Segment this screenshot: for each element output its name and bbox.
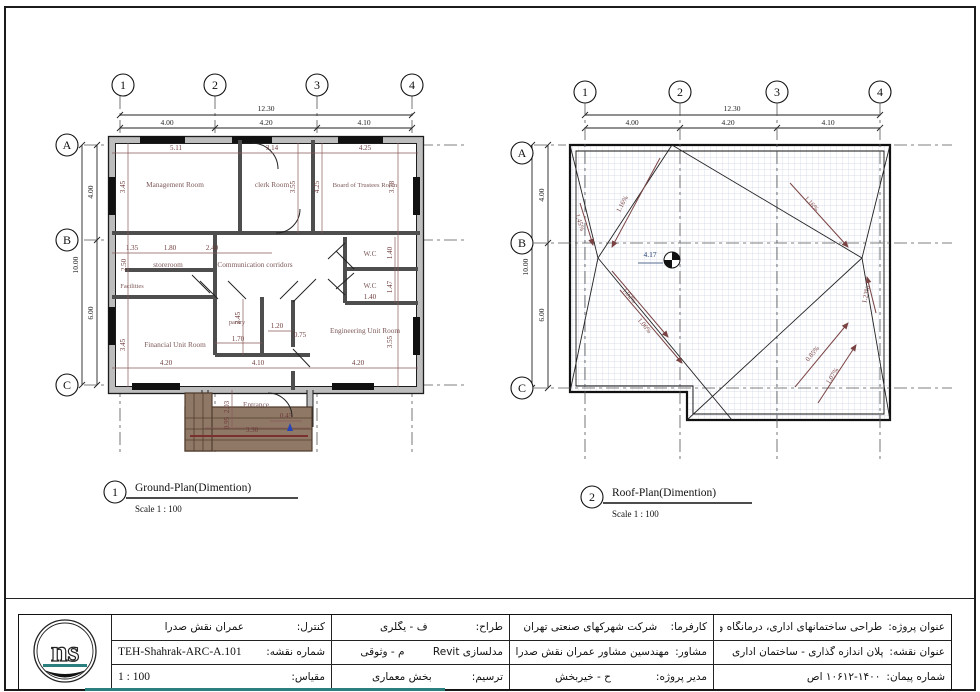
contract-number-value: ۱۰۶۱۲-۱۴۰۰ اص	[807, 671, 881, 683]
svg-text:1.70: 1.70	[232, 335, 245, 343]
svg-text:W.C: W.C	[364, 281, 377, 290]
ground-plan-view[interactable]: 12.30 4.00 4.20 4.10 4.00 6.00 10.00 1 2…	[40, 55, 470, 530]
view-number: 2	[589, 490, 595, 504]
drawing-sheet: 12.30 4.00 4.20 4.10 4.00 6.00 10.00 1 2…	[0, 0, 980, 692]
sheet-title-cell: عنوان نقشه: پلان اندازه گذاری - ساختمان …	[713, 640, 951, 665]
title-block: ns کنترل: عمران نقش صدرا طراح: ف - یگلری…	[18, 614, 952, 690]
sheet-number-value: TEH-Shahrak-ARC-A.101	[118, 646, 260, 658]
svg-text:10.00: 10.00	[521, 258, 530, 275]
svg-text:0.95: 0.95	[223, 416, 231, 429]
svg-text:storeroom: storeroom	[153, 260, 183, 269]
scale-label: مقیاس:	[291, 671, 325, 683]
svg-text:2.50: 2.50	[120, 258, 128, 271]
svg-text:2: 2	[677, 85, 683, 99]
client-value: شرکت شهرکهای صنعتی تهران	[516, 621, 665, 633]
project-title-value: طراحی ساختمانهای اداری، درمانگاه و مسجد	[720, 621, 882, 633]
svg-text:Board of Trustees Room: Board of Trustees Room	[333, 182, 399, 189]
svg-text:4.20: 4.20	[352, 359, 365, 367]
svg-text:C: C	[63, 378, 71, 392]
svg-text:Facilities: Facilities	[120, 283, 144, 290]
svg-text:5.11: 5.11	[170, 144, 182, 152]
svg-text:1.35: 1.35	[126, 244, 139, 252]
contract-number-label: شماره پیمان:	[886, 671, 945, 683]
modeling-cell: مدلسازی Revit م - وثوقی	[331, 640, 509, 665]
svg-text:B: B	[63, 233, 71, 247]
svg-text:W.C: W.C	[364, 249, 377, 258]
roof-plan-canvas: 12.30 4.00 4.20 4.10 4.00 6.00 10.00 1 2…	[500, 55, 960, 530]
designer-cell: طراح: ف - یگلری	[331, 615, 509, 640]
svg-text:12.30: 12.30	[724, 104, 741, 113]
svg-text:1.40: 1.40	[386, 246, 394, 259]
control-value: عمران نقش صدرا	[118, 621, 291, 633]
title-block-margin-line	[6, 598, 974, 599]
svg-text:2.40: 2.40	[206, 244, 219, 252]
svg-text:Communication corridors: Communication corridors	[217, 260, 292, 269]
svg-text:6.00: 6.00	[86, 306, 95, 319]
svg-text:1.80: 1.80	[164, 244, 177, 252]
scale-value: 1 : 100	[118, 671, 285, 683]
svg-text:4.10: 4.10	[252, 359, 265, 367]
designer-value: ف - یگلری	[338, 621, 470, 633]
project-manager-label: مدیر پروژه:	[656, 671, 707, 683]
svg-text:4.25: 4.25	[359, 144, 372, 152]
svg-text:4.00: 4.00	[160, 118, 173, 127]
client-cell: کارفرما: شرکت شهرکهای صنعتی تهران	[509, 615, 713, 640]
roof-plan-title: 2 Roof-Plan(Dimention) Scale 1 : 100	[581, 486, 752, 519]
sheet-number-label: شماره نقشه:	[266, 646, 325, 658]
view-title: Ground-Plan(Dimention)	[135, 482, 251, 494]
view-title: Roof-Plan(Dimention)	[612, 487, 716, 499]
logo-text: ns	[51, 635, 79, 668]
control-cell: کنترل: عمران نقش صدرا	[111, 615, 331, 640]
svg-text:clerk Room: clerk Room	[255, 180, 290, 189]
spot-elevation-value: 4.17	[643, 250, 656, 259]
svg-text:pantry: pantry	[229, 319, 246, 326]
svg-text:3.14: 3.14	[266, 144, 279, 152]
svg-text:3: 3	[774, 85, 780, 99]
svg-text:0.75: 0.75	[294, 331, 307, 339]
ground-plan-title: 1 Ground-Plan(Dimention) Scale 1 : 100	[104, 481, 298, 514]
svg-text:1: 1	[582, 85, 588, 99]
project-title-label: عنوان پروژه:	[888, 621, 945, 633]
svg-text:6.00: 6.00	[537, 308, 546, 321]
svg-text:4.00: 4.00	[86, 185, 95, 198]
dim-total-width: 12.30	[258, 104, 275, 113]
roof-plan-view[interactable]: 12.30 4.00 4.20 4.10 4.00 6.00 10.00 1 2…	[500, 55, 960, 530]
svg-text:4.20: 4.20	[721, 118, 734, 127]
sheet-number-cell: شماره نقشه: TEH-Shahrak-ARC-A.101	[111, 640, 331, 665]
svg-text:Financial Unit Room: Financial Unit Room	[144, 340, 206, 349]
svg-text:4.20: 4.20	[160, 359, 173, 367]
svg-text:4.00: 4.00	[537, 188, 546, 201]
svg-text:A: A	[518, 146, 527, 160]
svg-text:A: A	[63, 138, 72, 152]
svg-text:4.00: 4.00	[625, 118, 638, 127]
svg-text:2: 2	[212, 78, 218, 92]
consultant-value: مهندسین مشاور عمران نقش صدرا	[516, 646, 669, 658]
svg-text:3: 3	[314, 78, 320, 92]
svg-text:Management Room: Management Room	[146, 180, 204, 189]
svg-text:3.45: 3.45	[119, 338, 127, 351]
svg-text:Engineering Unit Room: Engineering Unit Room	[330, 326, 400, 335]
svg-text:0.45: 0.45	[280, 412, 293, 420]
svg-text:10.00: 10.00	[71, 256, 80, 273]
logo-icon: ns	[19, 615, 111, 689]
svg-text:4: 4	[409, 78, 415, 92]
project-title-cell: عنوان پروژه: طراحی ساختمانهای اداری، درم…	[713, 615, 951, 640]
bottom-teal-strip	[85, 688, 445, 691]
project-manager-value: ح - خیربخش	[516, 671, 650, 683]
designer-label: طراح:	[476, 621, 503, 633]
svg-text:1.47: 1.47	[386, 280, 394, 293]
sheet-title-label: عنوان نقشه:	[889, 646, 945, 658]
consultant-cell: مشاور: مهندسین مشاور عمران نقش صدرا	[509, 640, 713, 665]
svg-text:4.10: 4.10	[821, 118, 834, 127]
contract-number-cell: شماره پیمان: ۱۰۶۱۲-۱۴۰۰ اص	[713, 664, 951, 689]
svg-text:C: C	[518, 381, 526, 395]
svg-text:1.40: 1.40	[364, 293, 377, 301]
drafting-value: بخش معماری	[338, 671, 466, 683]
svg-text:4.20: 4.20	[259, 118, 272, 127]
svg-text:4.10: 4.10	[357, 118, 370, 127]
project-manager-cell: مدیر پروژه: ح - خیربخش	[509, 664, 713, 689]
svg-text:3.55: 3.55	[386, 335, 394, 348]
client-label: کارفرما:	[671, 621, 707, 633]
svg-text:3.45: 3.45	[119, 180, 127, 193]
svg-text:3.55: 3.55	[289, 180, 297, 193]
svg-text:4: 4	[877, 85, 883, 99]
svg-text:4.25: 4.25	[313, 180, 321, 193]
svg-text:Entrance: Entrance	[243, 400, 269, 409]
scale-cell: مقیاس: 1 : 100	[111, 664, 331, 689]
view-scale: Scale 1 : 100	[135, 504, 182, 514]
svg-text:1.20: 1.20	[271, 322, 284, 330]
svg-text:2.03: 2.03	[223, 400, 231, 413]
control-label: کنترل:	[297, 621, 325, 633]
company-logo: ns	[19, 615, 111, 689]
modeling-label: مدلسازی Revit	[433, 646, 503, 658]
sheet-title-value: پلان اندازه گذاری - ساختمان اداری	[732, 646, 883, 658]
drafting-label: ترسیم:	[472, 671, 503, 683]
consultant-label: مشاور:	[675, 646, 707, 658]
view-number: 1	[112, 485, 118, 499]
svg-text:3.30: 3.30	[246, 426, 259, 434]
svg-text:B: B	[518, 236, 526, 250]
svg-text:1: 1	[120, 78, 126, 92]
ground-plan-canvas: 12.30 4.00 4.20 4.10 4.00 6.00 10.00 1 2…	[40, 55, 470, 530]
view-scale: Scale 1 : 100	[612, 509, 659, 519]
modeling-value: م - وثوقی	[338, 646, 427, 658]
drafting-cell: ترسیم: بخش معماری	[331, 664, 509, 689]
